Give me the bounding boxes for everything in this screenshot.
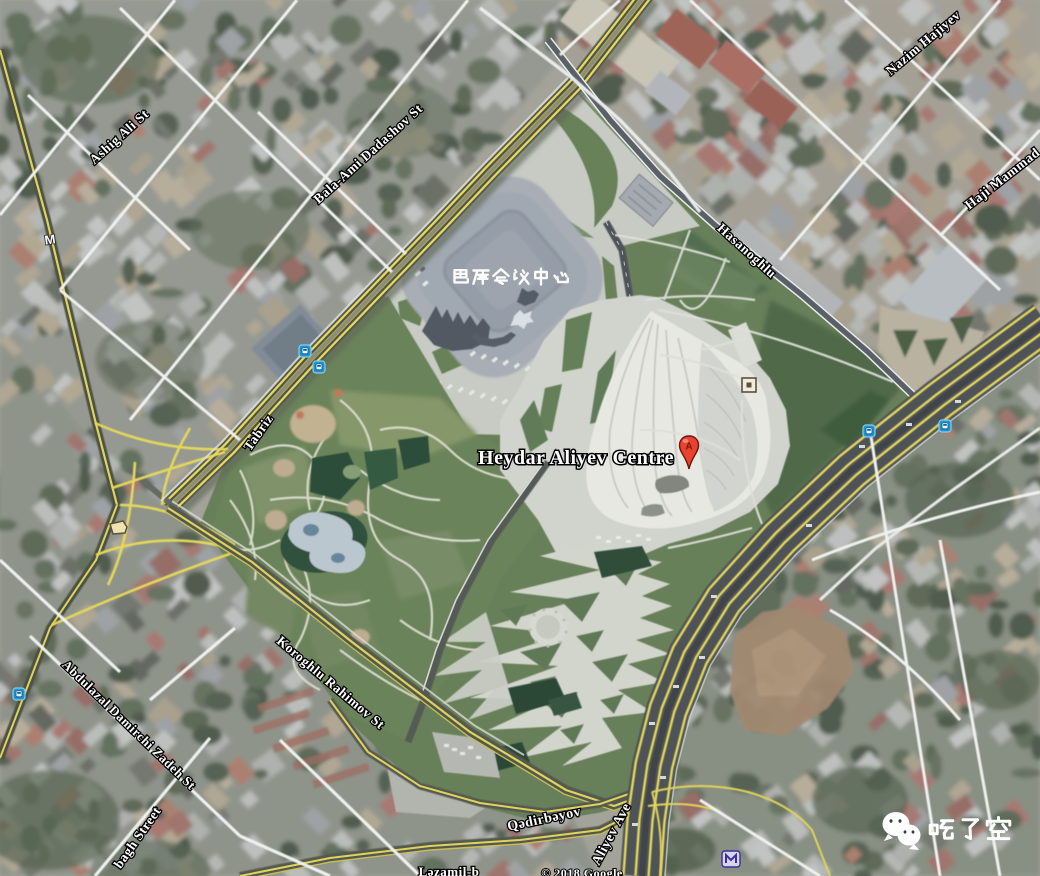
svg-text:Heydar Aliyev Centre: Heydar Aliyev Centre (478, 447, 674, 469)
svg-text:Ləzamil-b: Ləzamil-b (419, 864, 480, 876)
svg-text:A: A (685, 442, 692, 453)
svg-text:M: M (44, 231, 57, 247)
svg-text:© 2018 Google: © 2018 Google (541, 866, 623, 876)
